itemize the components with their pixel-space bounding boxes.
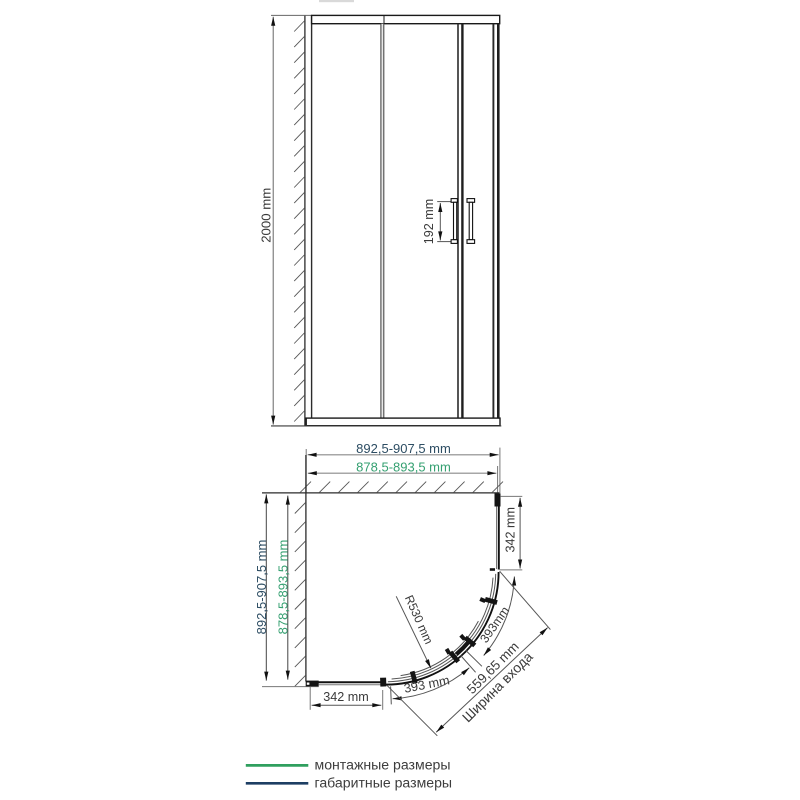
- svg-text:монтажные размеры: монтажные размеры: [315, 756, 451, 772]
- svg-text:878,5-893,5 mm: 878,5-893,5 mm: [356, 459, 451, 474]
- svg-text:2000 mm: 2000 mm: [258, 188, 273, 243]
- svg-text:342 mm: 342 mm: [323, 690, 369, 704]
- svg-text:878,5-893,5 mm: 878,5-893,5 mm: [275, 540, 290, 635]
- svg-text:892,5-907,5 mm: 892,5-907,5 mm: [356, 441, 451, 456]
- svg-text:192 mm: 192 mm: [422, 199, 436, 245]
- svg-text:892,5-907,5 mm: 892,5-907,5 mm: [254, 540, 269, 635]
- svg-text:342 mm: 342 mm: [504, 507, 518, 553]
- svg-text:габаритные размеры: габаритные размеры: [315, 774, 453, 790]
